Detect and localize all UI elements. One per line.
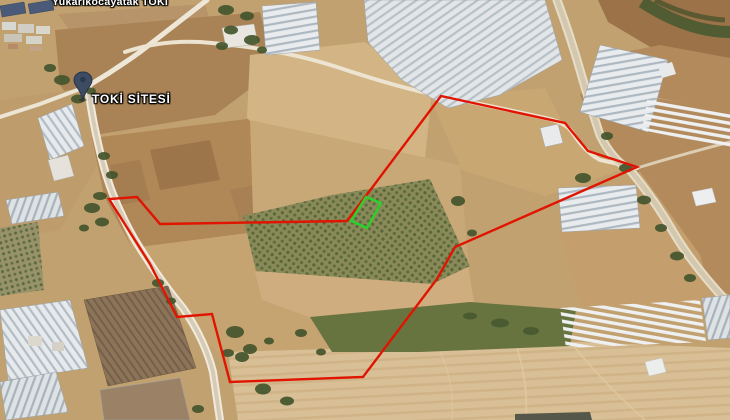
satellite-imagery xyxy=(0,0,730,420)
place-label-area: Yukarıkocayatak TOKİ xyxy=(52,0,168,8)
place-label-site[interactable]: TOKİ SİTESİ xyxy=(92,92,171,106)
greenhouse-block xyxy=(262,2,320,55)
greenhouse-tunnels xyxy=(560,300,706,348)
greenhouse-block xyxy=(558,185,640,232)
map-canvas[interactable]: Yukarıkocayatak TOKİ TOKİ SİTESİ xyxy=(0,0,730,420)
